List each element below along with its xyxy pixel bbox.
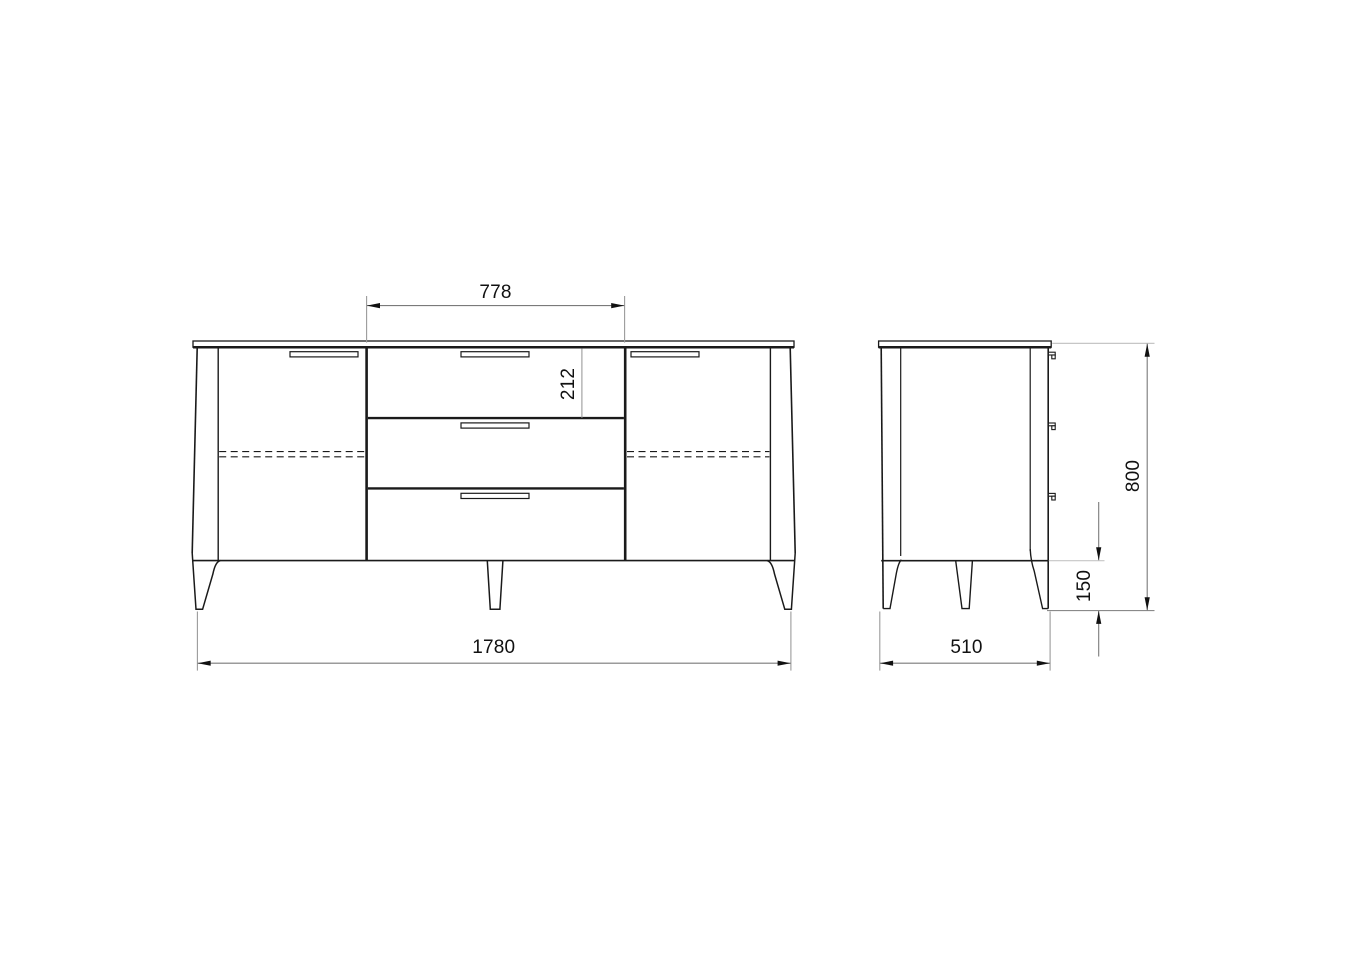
dim-label-depth: 510 xyxy=(950,637,982,659)
dim-label-overall-width: 1780 xyxy=(472,637,515,659)
sideboard-dimension-drawing xyxy=(0,0,1350,960)
arrowhead-left xyxy=(367,303,380,308)
arrowhead-left xyxy=(880,661,893,666)
side-rear-leg xyxy=(883,560,901,609)
side-view xyxy=(879,341,1056,609)
front-right-leg xyxy=(767,553,795,609)
front-center-leg xyxy=(487,561,503,610)
side-center-leg xyxy=(956,561,973,609)
front-view xyxy=(192,341,795,609)
front-left-leg xyxy=(192,553,220,609)
side-handle-1 xyxy=(1048,352,1055,359)
front-top-panel xyxy=(193,341,794,347)
drawer-2-handle xyxy=(461,423,529,428)
front-left-side-edge xyxy=(192,348,197,553)
right-door-shelf-dashed-lines xyxy=(627,452,769,457)
dim-label-leg-height: 150 xyxy=(1074,570,1096,602)
arrowhead-right xyxy=(778,661,791,666)
front-right-side-edge xyxy=(790,348,795,553)
drawer-1-handle xyxy=(461,352,529,357)
side-back-edge xyxy=(881,348,883,609)
side-handle-2 xyxy=(1048,423,1055,430)
right-door-handle xyxy=(631,352,699,357)
arrowhead-top xyxy=(1145,344,1150,357)
dim-label-drawer-section-width: 778 xyxy=(479,282,511,304)
arrowhead-right xyxy=(611,303,624,308)
left-door-handle xyxy=(290,352,358,357)
arrowhead-right xyxy=(1037,661,1050,666)
arrowhead-up xyxy=(1096,611,1101,624)
left-door-shelf-dashed-lines xyxy=(219,452,365,457)
side-top-panel xyxy=(879,341,1052,347)
drawing-canvas: 778 212 1780 510 800 150 xyxy=(0,0,1350,960)
dim-label-overall-height: 800 xyxy=(1123,460,1145,492)
arrowhead-bottom xyxy=(1145,597,1150,610)
arrowhead-down xyxy=(1096,547,1101,560)
arrowhead-left xyxy=(198,661,211,666)
side-front-leg xyxy=(1030,549,1048,609)
side-handle-3 xyxy=(1048,493,1055,500)
dim-label-top-drawer-height: 212 xyxy=(558,368,580,400)
drawer-3-handle xyxy=(461,493,529,498)
